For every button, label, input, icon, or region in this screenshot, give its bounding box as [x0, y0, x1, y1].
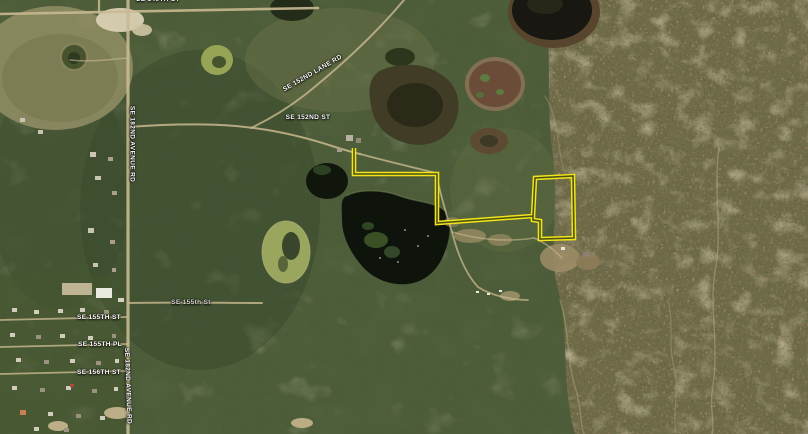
aerial-imagery	[0, 0, 808, 434]
aerial-map[interactable]: SE 149TH ST SE 152ND LANE RD SE 152ND ST…	[0, 0, 808, 434]
